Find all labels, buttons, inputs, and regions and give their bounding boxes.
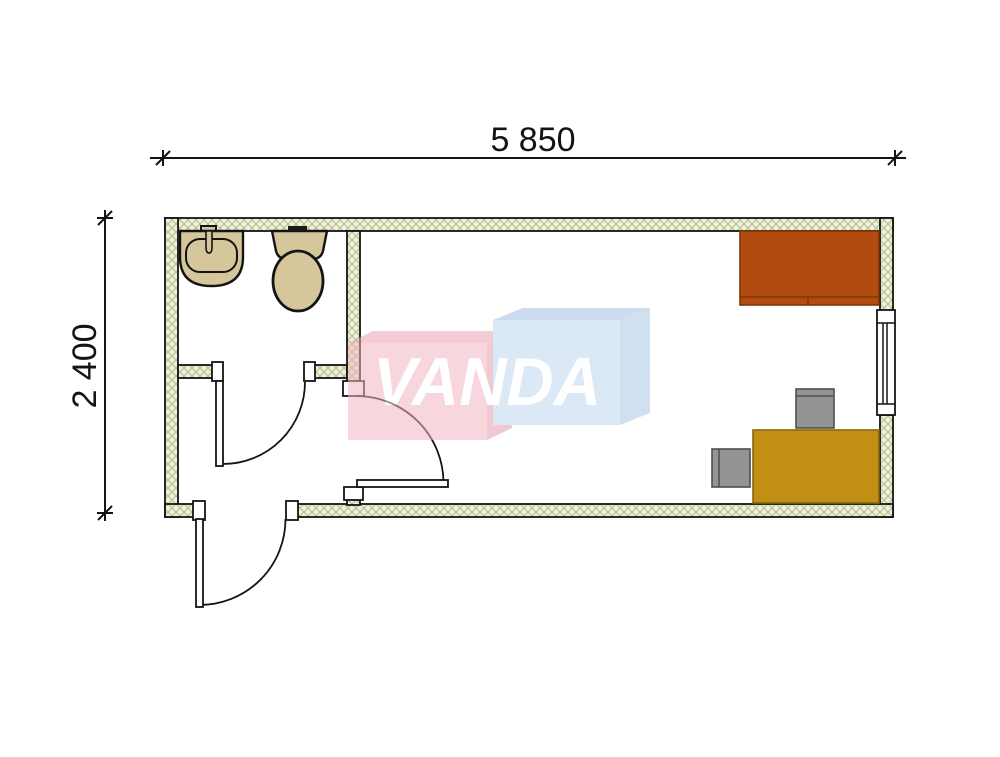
toilet (272, 226, 327, 311)
jamb-entrance-left (193, 501, 205, 520)
chair-1-seat (796, 389, 834, 428)
bathroom-door-leaf (216, 381, 223, 466)
jamb-interior-door-bottom (344, 487, 363, 500)
wall-bottom-left-segment (165, 504, 196, 517)
desk-top (753, 430, 879, 503)
wall-top (165, 218, 893, 231)
height-dimension-label: 2 400 (66, 323, 104, 408)
interior-door-leaf (357, 480, 448, 487)
watermark-blue-side-face (620, 308, 650, 425)
floor-plan-drawing: 5 850 2 400 (0, 0, 1000, 757)
window (877, 310, 895, 415)
desk (753, 430, 879, 503)
sink-faucet-spout (206, 231, 212, 253)
wall-right-lower (880, 415, 893, 517)
wall-right-upper (880, 218, 893, 312)
chair-2-seat (712, 449, 750, 487)
width-dimension-label: 5 850 (490, 121, 575, 159)
chair-1 (796, 389, 834, 428)
bed-body (740, 231, 879, 305)
watermark-text: VANDA (373, 344, 601, 420)
watermark: VANDA (348, 308, 650, 440)
bed (740, 231, 879, 305)
jamb-bathroom-door-left (212, 362, 223, 381)
bathroom-door-swing-arc (223, 382, 305, 464)
bathroom-door (216, 381, 305, 466)
wall-left (165, 218, 178, 517)
jamb-bathroom-door-right (304, 362, 315, 381)
toilet-bowl (273, 251, 323, 311)
wall-bottom-right-segment (289, 504, 893, 517)
floor-plan-canvas: 5 850 2 400 (0, 0, 1000, 757)
watermark-pink-top-face (348, 331, 512, 343)
entrance-door-swing-arc (200, 519, 286, 605)
entrance-door-leaf (196, 519, 203, 607)
entrance-door (196, 519, 286, 607)
window-frame (877, 310, 895, 415)
chair-2 (712, 449, 750, 487)
sink (180, 226, 243, 286)
jamb-entrance-right (286, 501, 298, 520)
